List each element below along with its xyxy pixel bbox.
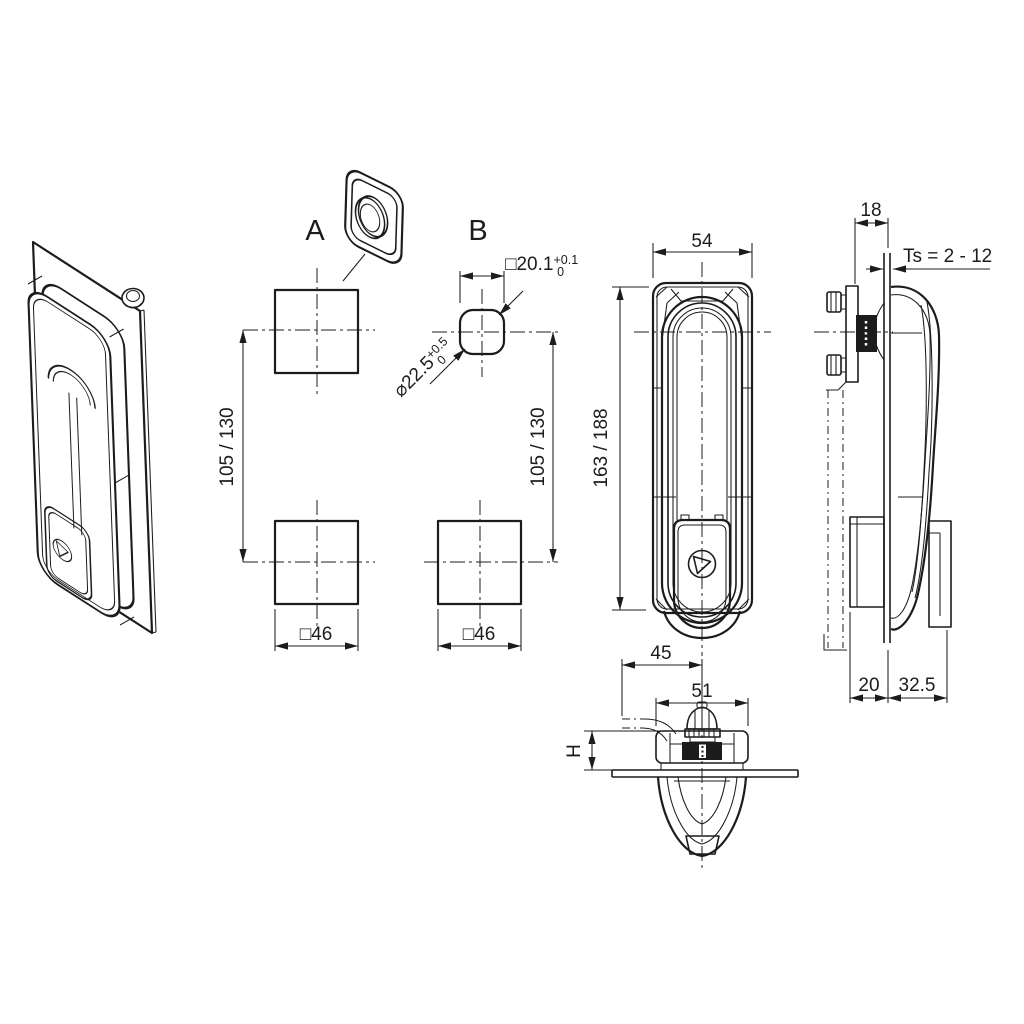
door-panel-section [884,253,890,643]
dim-front-height: 163 / 188 [591,408,612,487]
dim-side-grip-depth: 18 [860,200,881,221]
fixing-screw-top [827,292,846,312]
rear-housing [850,517,884,607]
leader-line-a [343,254,365,281]
dim-side-front-of-door: 32.5 [899,675,936,696]
lever-phantom [622,719,645,728]
view-b-cutout-layout: □20.1+0.10 ⌀22.5+0.50 105 / 130 □46 [389,253,578,651]
dim-front-width: 54 [691,231,713,252]
side-view: 18 Ts = 2 - 12 20 32.5 [814,200,992,703]
dim-side-door-thickness: Ts = 2 - 12 [903,246,992,267]
dim-side-behind-door: 20 [858,675,879,696]
dim-a-height: 105 / 130 [217,407,238,486]
drawing-canvas: A B 105 / 130 □46 □20.1+0.10 ⌀22.5+0.50 [0,0,1024,1024]
view-label-a: A [305,215,325,247]
dim-b-cutout-diameter: ⌀22.5+0.50 [389,334,459,404]
dim-a-square: □46 [300,624,333,645]
dim-bottom-housing-width: 51 [691,681,712,702]
dim-bottom-height: H [564,744,585,758]
view-label-b: B [468,215,487,247]
rear-shaft-knob [122,289,144,309]
bottom-view: 45 51 H [564,643,798,868]
dim-b-cutout-square: □20.1+0.10 [505,253,578,279]
door-plate [612,770,798,777]
part-a-gasket-iso [343,166,403,281]
technical-drawing: A B 105 / 130 □46 □20.1+0.10 ⌀22.5+0.50 [0,0,1024,1024]
view-a-cutout-layout: 105 / 130 □46 [217,268,375,651]
front-view: 54 163 / 188 [591,231,771,656]
fixing-screw-bottom [827,355,846,375]
isometric-installation-view [28,242,156,633]
dim-b-square: □46 [463,624,496,645]
dim-b-height: 105 / 130 [528,407,549,486]
dim-bottom-lever: 45 [650,643,671,664]
